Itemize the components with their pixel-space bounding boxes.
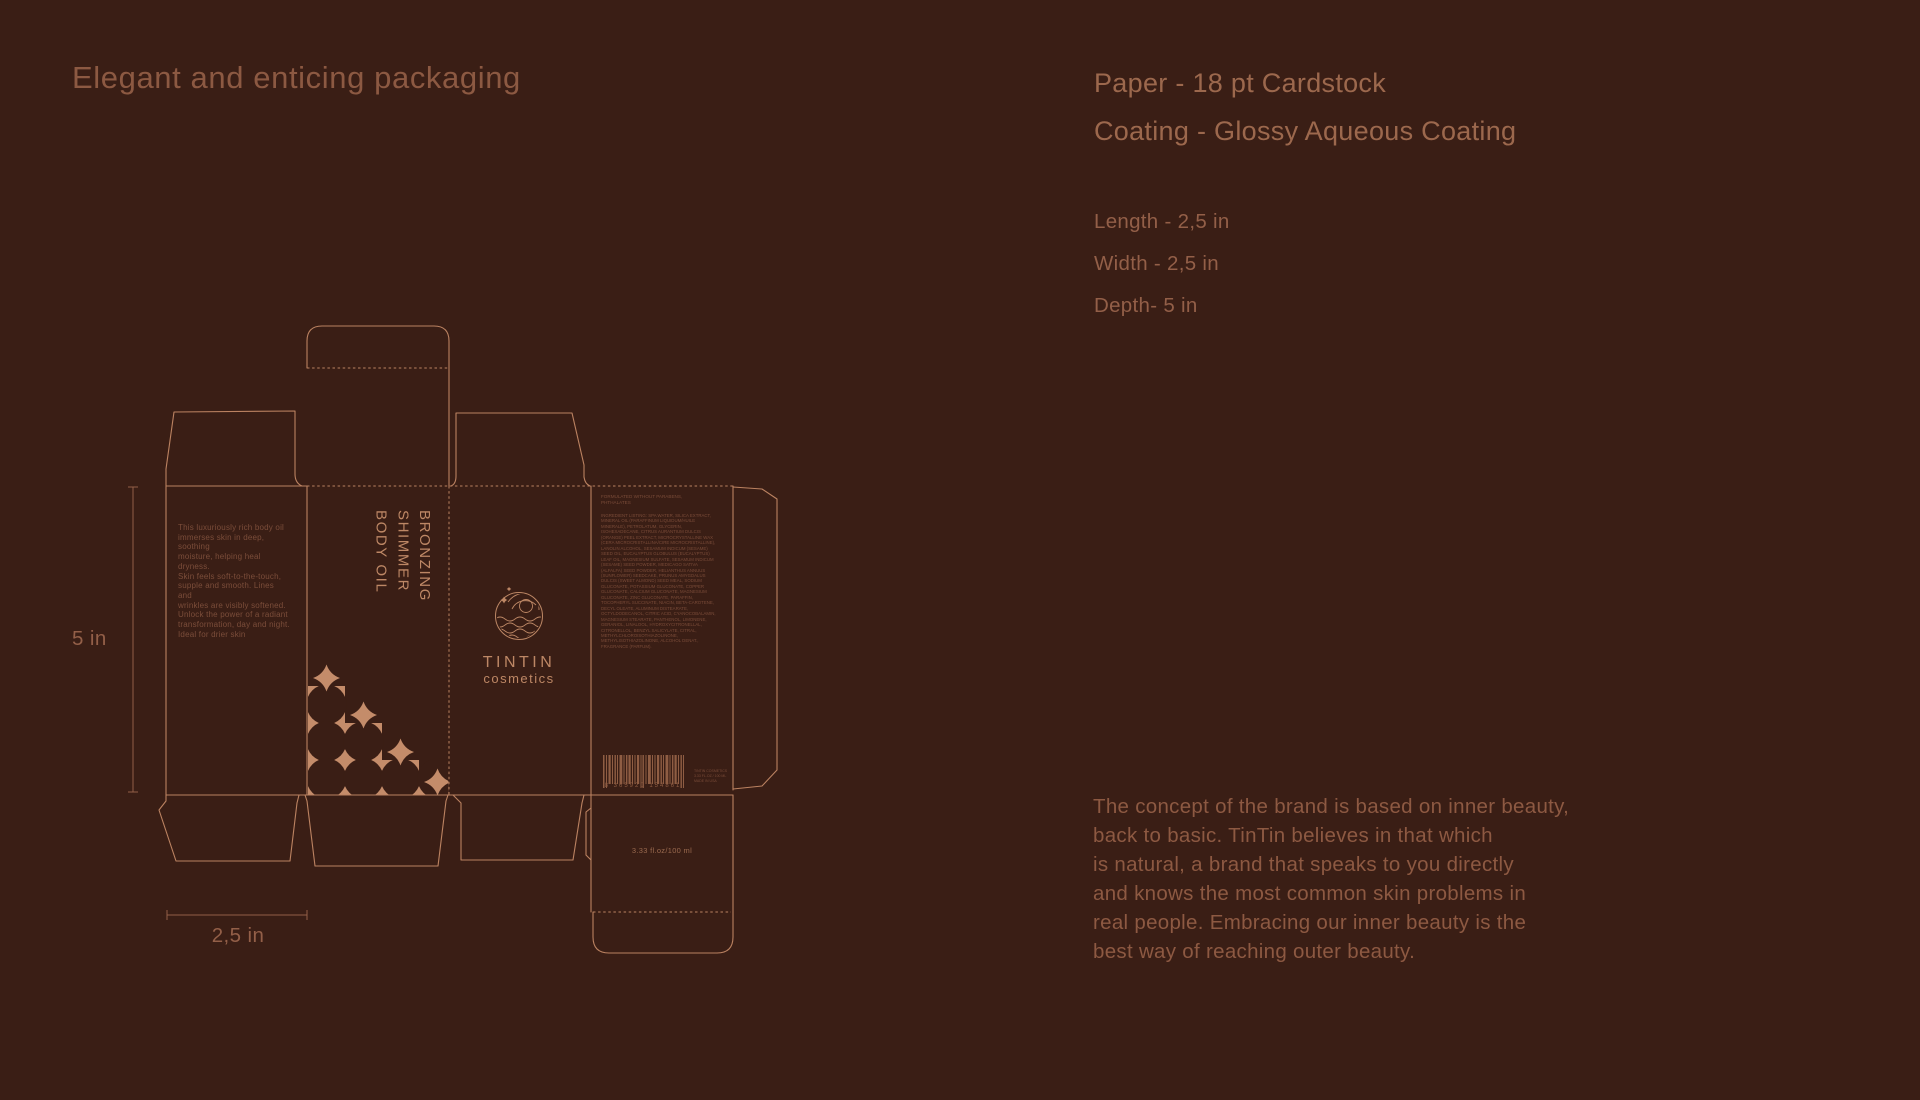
- logo-subtitle: cosmetics: [459, 671, 579, 686]
- back-panel-claims: FORMULATED WITHOUT PARABENS, PHTHALATES: [601, 494, 713, 506]
- product-name-vertical: BRONZING SHIMMER BODY OIL: [370, 510, 435, 710]
- presentation-page: { "page": { "background": "#3a1e15", "li…: [0, 0, 1920, 1100]
- brand-concept-paragraph: The concept of the brand is based on inn…: [1093, 792, 1573, 966]
- page-title: Elegant and enticing packaging: [72, 60, 521, 96]
- ingredients-list: INGREDIENT LISTING: SPA WATER, SILICA EX…: [601, 513, 720, 649]
- spec-coating: Coating - Glossy Aqueous Coating: [1094, 116, 1516, 147]
- spec-length: Length - 2,5 in: [1094, 210, 1230, 234]
- spec-paper: Paper - 18 pt Cardstock: [1094, 68, 1386, 99]
- logo-wordmark: TINTIN: [459, 654, 579, 672]
- tintin-logo-icon: [495, 587, 545, 640]
- volume-label: 3.33 fl.oz/100 ml: [592, 846, 732, 855]
- distributor-text: TINTIN COSMETICS 3.33 FL.OZ / 100 ML MAD…: [694, 769, 727, 783]
- depth-dimension-label: 5 in: [72, 627, 107, 651]
- side-panel-copy: This luxuriously rich body oil immerses …: [178, 523, 290, 639]
- width-dimension-label: 2,5 in: [206, 924, 270, 948]
- spec-width: Width - 2,5 in: [1094, 252, 1219, 276]
- barcode-digits: 8 365920 154861: [601, 783, 685, 789]
- spec-depth: Depth- 5 in: [1094, 294, 1198, 318]
